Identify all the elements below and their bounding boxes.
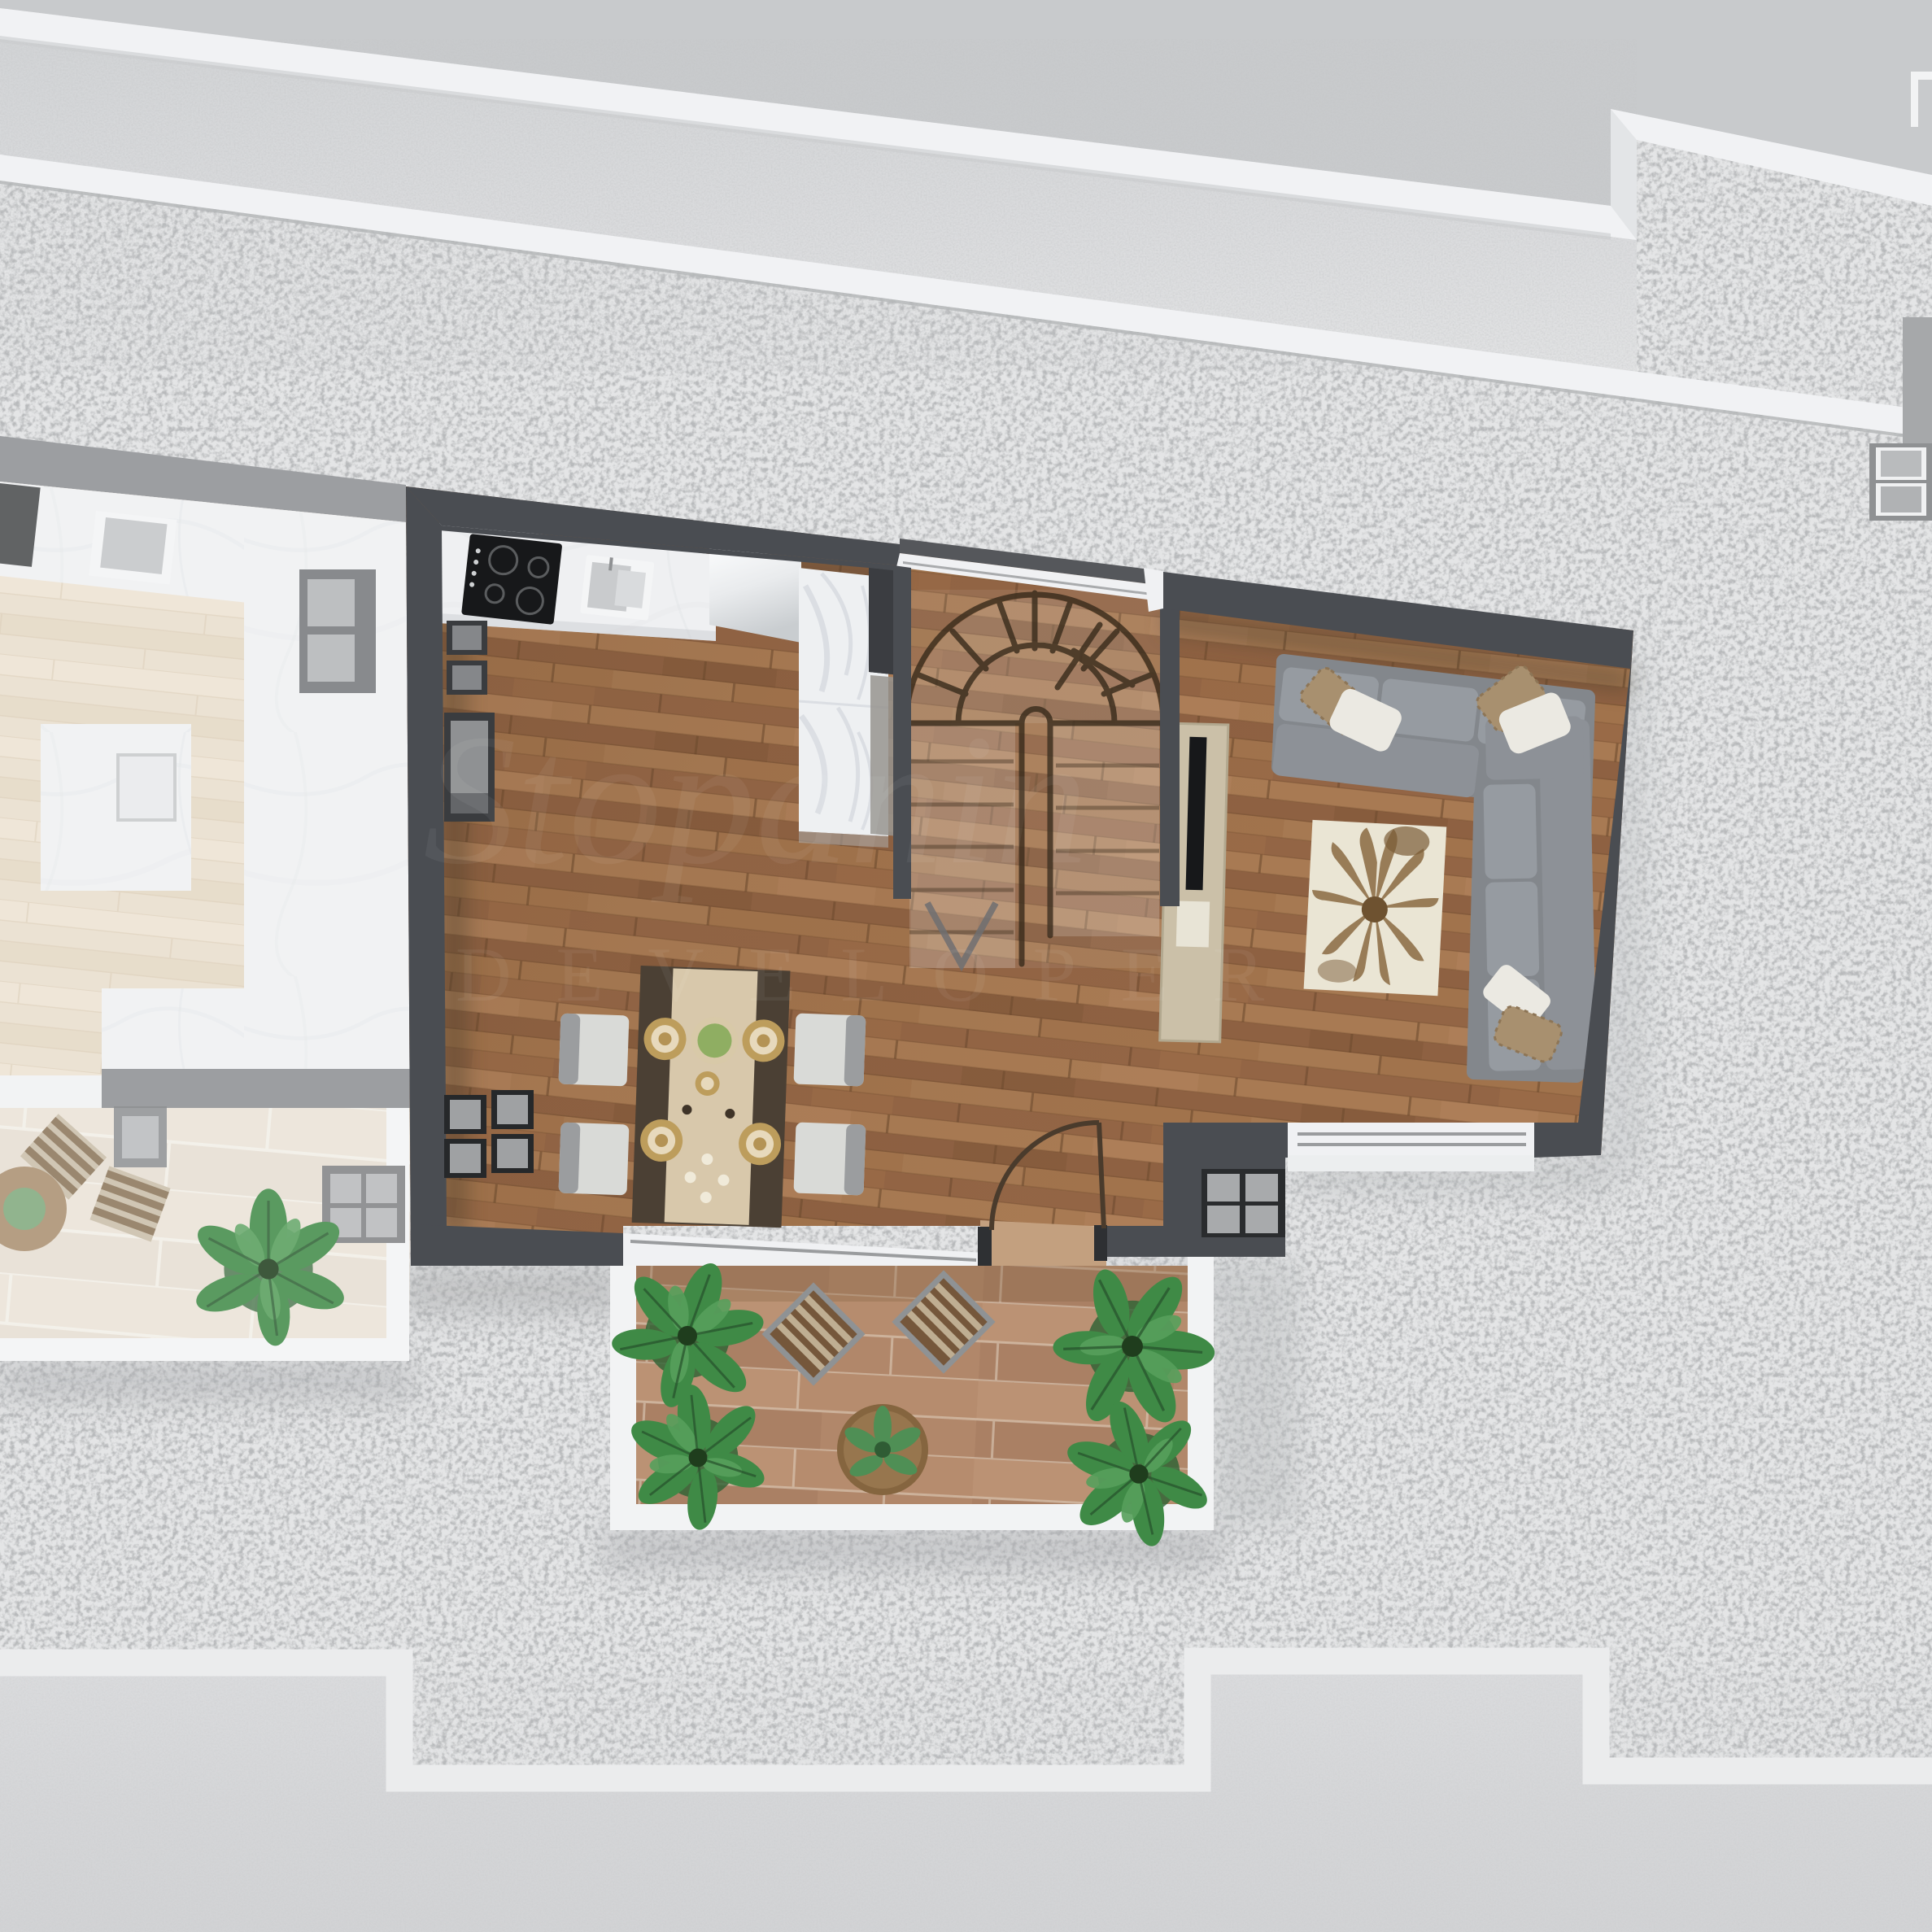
svg-text:DEVELOPER: DEVELOPER	[456, 931, 1309, 1018]
svg-text:Stopanin: Stopanin	[423, 696, 1088, 903]
